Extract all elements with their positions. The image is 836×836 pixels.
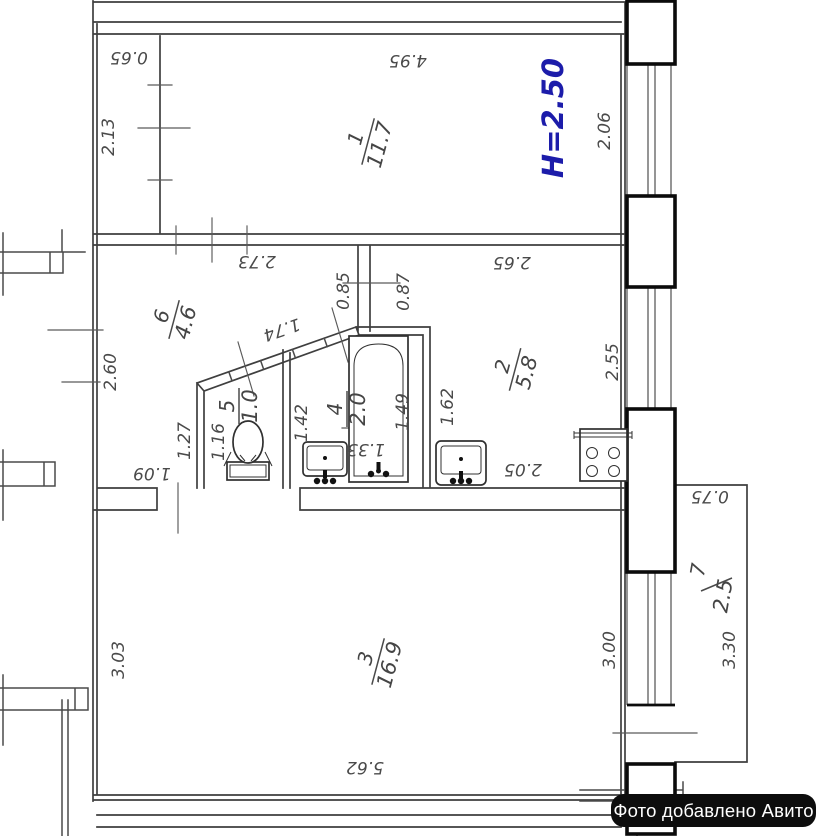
kitchen-sink-tap-mid [458, 478, 464, 484]
wall-pier-2 [627, 196, 675, 287]
room-6-number: 6 [148, 307, 174, 326]
dim-balcony-length: 3.30 [720, 631, 740, 669]
kitchen-sink-tap-right [466, 478, 472, 484]
bath-sink-drain [323, 456, 327, 460]
bath-sink-tap-mid [322, 478, 328, 484]
dim-kitchen-bottom: 2.05 [504, 459, 542, 479]
room-7-label: 7 2.5 [685, 561, 738, 614]
room-6-area: 4.6 [170, 303, 202, 341]
room-7-number: 7 [685, 561, 711, 578]
toilet-bowl [233, 421, 263, 463]
dim-tub-length: 1.49 [393, 393, 413, 431]
room-4-area: 2.0 [346, 392, 370, 425]
dim-balcony-width: 0.75 [691, 486, 729, 506]
dim-room3-door: 1.09 [133, 463, 171, 483]
bath-sink-fixture [303, 442, 347, 484]
dim-bath-mid: 1.33 [347, 439, 385, 459]
bath-sink-faucet-stem [323, 470, 327, 478]
room-5-number: 5 [215, 400, 239, 413]
avito-badge: Фото добавлено Авито [611, 794, 816, 827]
window-lines [627, 65, 671, 705]
dim-room3-bottom: 5.62 [346, 757, 384, 777]
ceiling-height-text: H=2.50 [536, 58, 570, 178]
dim-room1-width: 4.95 [389, 50, 427, 70]
adjacent-structures [0, 230, 683, 836]
kitchen-sink-fixture [436, 441, 486, 485]
dim-passage-right: 0.87 [394, 273, 414, 311]
avito-badge-text: Фото добавлено Авито [613, 800, 813, 822]
dim-corridor-top: 2.73 [238, 251, 276, 271]
kitchen-sink-drain [459, 457, 463, 461]
room-1-label: 1 11.7 [338, 112, 398, 171]
dim-window-room1: 2.06 [595, 112, 615, 150]
room-5-label: 5 1.0 [215, 388, 262, 424]
toilet-fixture [224, 421, 272, 480]
room-4-number: 4 [323, 403, 347, 416]
dim-passage-left: 0.85 [334, 272, 354, 310]
ceiling-height-label: H=2.50 [536, 58, 570, 178]
wall-pier-3 [627, 409, 675, 572]
dim-corridor-left: 2.60 [101, 353, 121, 391]
dim-wc-offset: 1.27 [175, 422, 195, 460]
bathtub-spout [376, 469, 381, 474]
kitchen-sink-tap-left [450, 478, 456, 484]
dim-room3-left: 3.03 [109, 641, 129, 679]
floor-plan-photo: 0.65 4.95 2.13 2.06 2.73 2.65 2.60 0.85 … [0, 0, 836, 836]
room-2-number: 2 [489, 357, 515, 376]
room-3-number: 3 [352, 649, 378, 668]
dim-room1-side: 2.13 [99, 118, 119, 156]
bathtub-tap-left [368, 471, 374, 477]
dim-diagonal-wall: 1.74 [261, 313, 303, 344]
dim-bath-sink-width: 1.42 [292, 404, 312, 442]
windows [627, 1, 675, 834]
bath-sink-tap-left [314, 478, 320, 484]
dim-wc-width: 1.16 [209, 423, 229, 461]
room-2-label: 2 5.8 [485, 342, 544, 397]
room-1-area: 11.7 [362, 118, 397, 170]
wall-pier-1 [627, 1, 675, 64]
room-5-area: 1.0 [238, 389, 262, 422]
room-6-label: 6 4.6 [145, 294, 203, 345]
room-3-area: 16.9 [372, 639, 407, 690]
bath-sink-tap-right [330, 478, 336, 484]
dim-kitchen-window: 2.55 [603, 343, 623, 381]
stove-fixture [574, 429, 632, 481]
room-2-area: 5.8 [511, 353, 543, 391]
room-4-label: 4 2.0 [323, 391, 370, 427]
room-3-label: 3 16.9 [348, 632, 408, 691]
dim-strip-width: 0.65 [110, 47, 148, 67]
room-7-area: 2.5 [708, 577, 737, 614]
dim-kitchen-sink-width: 1.62 [438, 388, 458, 426]
floor-plan-drawing: 0.65 4.95 2.13 2.06 2.73 2.65 2.60 0.85 … [0, 0, 836, 836]
window-caps [627, 64, 675, 705]
room-1-number: 1 [342, 129, 368, 148]
adjacent-structure-lines [0, 230, 683, 836]
kitchen-sink-faucet-stem [459, 471, 463, 479]
bathtub-tap-right [383, 471, 389, 477]
dim-wall-bottom-right: 3.00 [600, 631, 620, 669]
dim-kitchen-top: 2.65 [493, 252, 531, 272]
